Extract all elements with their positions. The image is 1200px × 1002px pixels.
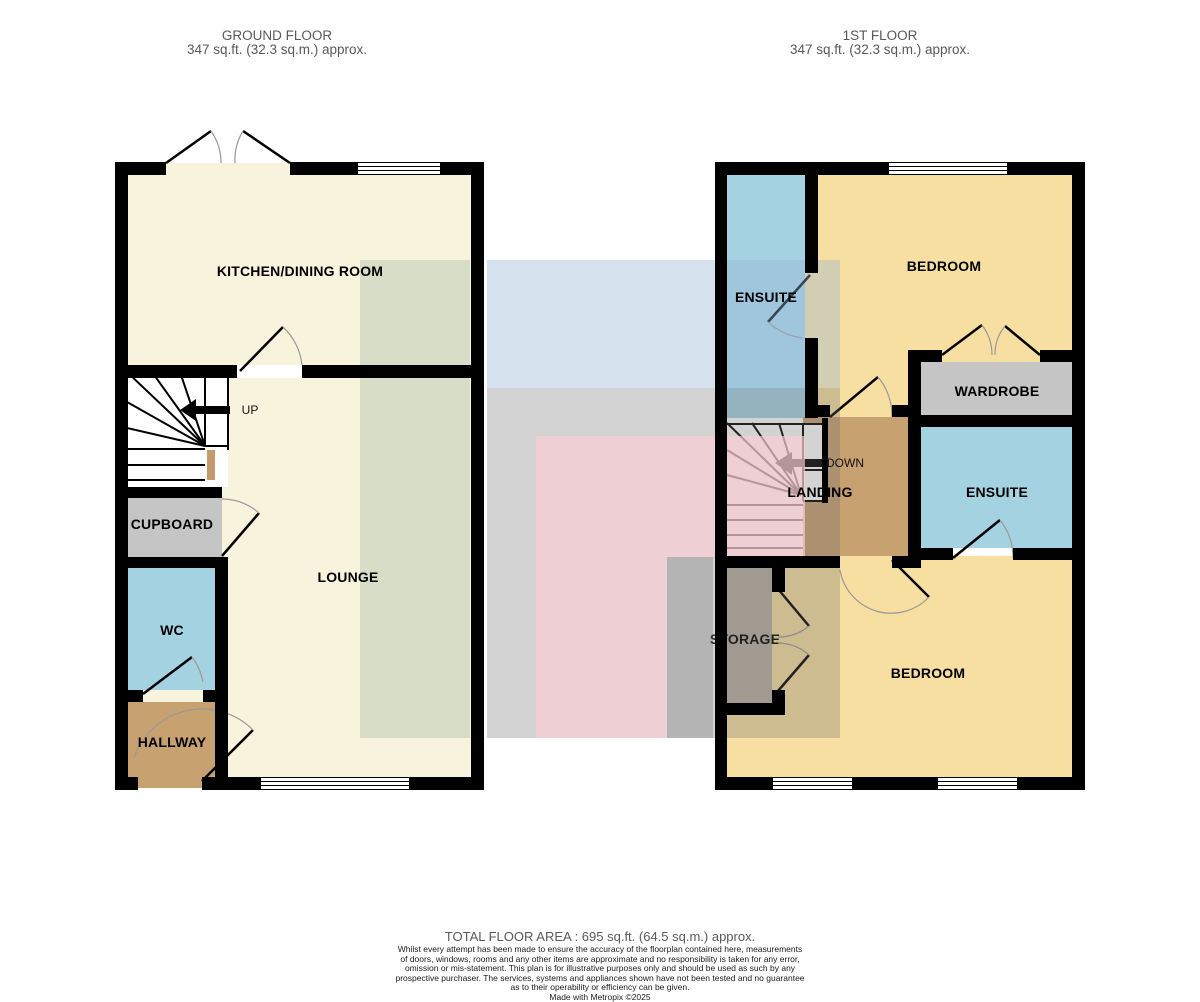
first-floor-title: 1ST FLOOR	[843, 28, 918, 43]
bedroom-rear-label: BEDROOM	[891, 665, 966, 681]
first-floor-area: 347 sq.ft. (32.3 sq.m.) approx.	[790, 42, 970, 57]
hallway-label: HALLWAY	[138, 734, 207, 750]
watermark-gray-small	[667, 557, 713, 738]
watermark-pink-lower	[536, 557, 667, 738]
wardrobe-label: WARDROBE	[955, 383, 1040, 399]
ground-floor-title: GROUND FLOOR	[222, 28, 332, 43]
bedroom-rear-window-left	[772, 777, 853, 790]
cupboard-label: CUPBOARD	[131, 516, 214, 532]
lounge-label: LOUNGE	[317, 569, 378, 585]
floorplan-canvas: GROUND FLOOR 347 sq.ft. (32.3 sq.m.) app…	[0, 0, 1200, 1002]
wc-label: WC	[160, 622, 184, 638]
bedroom-front-window	[888, 162, 1008, 175]
lounge-window	[260, 777, 410, 790]
bedroom-front-label: BEDROOM	[907, 258, 982, 274]
kitchen-dining-label: KITCHEN/DINING ROOM	[217, 263, 383, 279]
landing-label: LANDING	[787, 484, 852, 500]
ground-staircase	[127, 372, 228, 487]
ensuite-rear-label: ENSUITE	[966, 484, 1028, 500]
metropix-credit: Made with Metropix ©2025	[549, 993, 650, 1002]
ensuite-front-label: ENSUITE	[735, 289, 797, 305]
bedroom-rear-window-right	[937, 777, 1018, 790]
down-label: DOWN	[826, 456, 864, 470]
watermark-green	[360, 260, 470, 738]
total-floor-area: TOTAL FLOOR AREA : 695 sq.ft. (64.5 sq.m…	[445, 929, 755, 944]
watermark-pink-upper	[536, 436, 805, 557]
watermark-blue	[487, 260, 840, 388]
kitchen-window	[357, 162, 441, 175]
ground-floor-area: 347 sq.ft. (32.3 sq.m.) approx.	[187, 42, 367, 57]
up-label: UP	[242, 403, 259, 417]
